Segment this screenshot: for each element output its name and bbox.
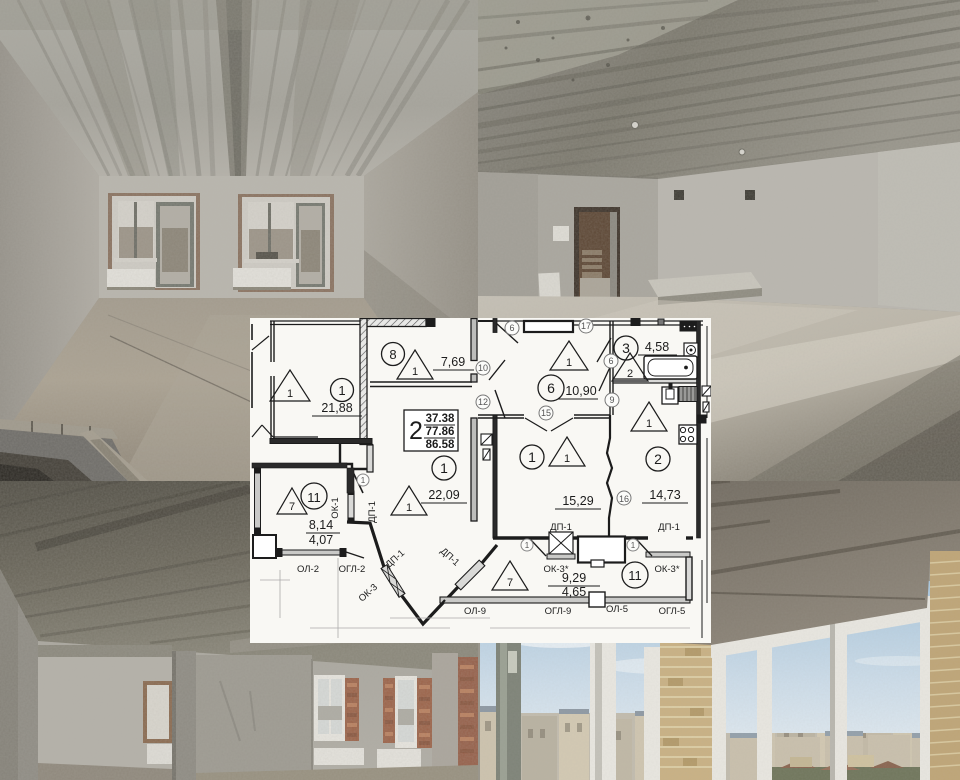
svg-text:10: 10 xyxy=(478,363,488,373)
svg-text:ОК-3*: ОК-3* xyxy=(654,564,679,575)
svg-text:1: 1 xyxy=(528,449,536,465)
svg-text:7: 7 xyxy=(289,501,295,513)
svg-text:86.58: 86.58 xyxy=(426,439,455,451)
svg-text:ОГЛ-9: ОГЛ-9 xyxy=(545,606,572,617)
svg-text:4,07: 4,07 xyxy=(309,533,333,547)
svg-text:4,58: 4,58 xyxy=(645,340,669,354)
svg-text:11: 11 xyxy=(307,490,321,505)
svg-text:16: 16 xyxy=(619,494,629,504)
svg-text:ОГЛ-2: ОГЛ-2 xyxy=(339,564,366,575)
svg-text:ОК-1: ОК-1 xyxy=(330,497,341,518)
svg-text:15,29: 15,29 xyxy=(562,494,593,508)
svg-text:ОЛ-2: ОЛ-2 xyxy=(297,564,319,575)
svg-text:12: 12 xyxy=(478,397,488,407)
svg-text:6: 6 xyxy=(608,356,613,366)
svg-text:17: 17 xyxy=(581,321,591,331)
svg-text:6: 6 xyxy=(509,323,514,333)
svg-text:1: 1 xyxy=(525,541,530,550)
svg-text:ДП-1: ДП-1 xyxy=(550,522,572,533)
svg-text:1: 1 xyxy=(406,502,412,514)
svg-text:1: 1 xyxy=(338,383,345,398)
svg-text:1: 1 xyxy=(646,418,652,430)
svg-text:ДП-1: ДП-1 xyxy=(367,501,378,523)
svg-text:2: 2 xyxy=(409,417,423,445)
svg-text:1: 1 xyxy=(287,388,293,400)
svg-text:22,09: 22,09 xyxy=(428,488,459,502)
svg-text:8: 8 xyxy=(389,347,396,362)
svg-text:1: 1 xyxy=(631,541,636,550)
svg-text:7: 7 xyxy=(507,577,513,589)
svg-text:8,14: 8,14 xyxy=(309,518,333,532)
svg-text:21,88: 21,88 xyxy=(321,401,352,415)
svg-text:1: 1 xyxy=(440,460,448,476)
svg-text:ОЛ-9: ОЛ-9 xyxy=(464,606,486,617)
svg-text:4,65: 4,65 xyxy=(562,585,586,599)
svg-text:1: 1 xyxy=(412,366,418,378)
svg-text:1: 1 xyxy=(564,453,570,465)
svg-text:1: 1 xyxy=(566,357,572,369)
svg-text:6: 6 xyxy=(547,380,555,396)
svg-text:37.38: 37.38 xyxy=(426,413,455,425)
svg-text:14,73: 14,73 xyxy=(649,488,680,502)
svg-text:2: 2 xyxy=(627,368,633,380)
svg-text:11: 11 xyxy=(628,568,642,583)
svg-text:ОЛ-5: ОЛ-5 xyxy=(606,604,628,615)
svg-text:15: 15 xyxy=(541,408,551,418)
svg-text:1: 1 xyxy=(361,476,366,485)
svg-text:9: 9 xyxy=(609,395,614,405)
svg-text:77.86: 77.86 xyxy=(426,426,455,438)
svg-text:ОГЛ-5: ОГЛ-5 xyxy=(659,606,686,617)
svg-text:7,69: 7,69 xyxy=(441,355,465,369)
svg-text:ОК-3*: ОК-3* xyxy=(543,564,568,575)
svg-text:10,90: 10,90 xyxy=(565,384,596,398)
svg-text:ДП-1: ДП-1 xyxy=(658,522,680,533)
svg-text:2: 2 xyxy=(654,451,662,467)
